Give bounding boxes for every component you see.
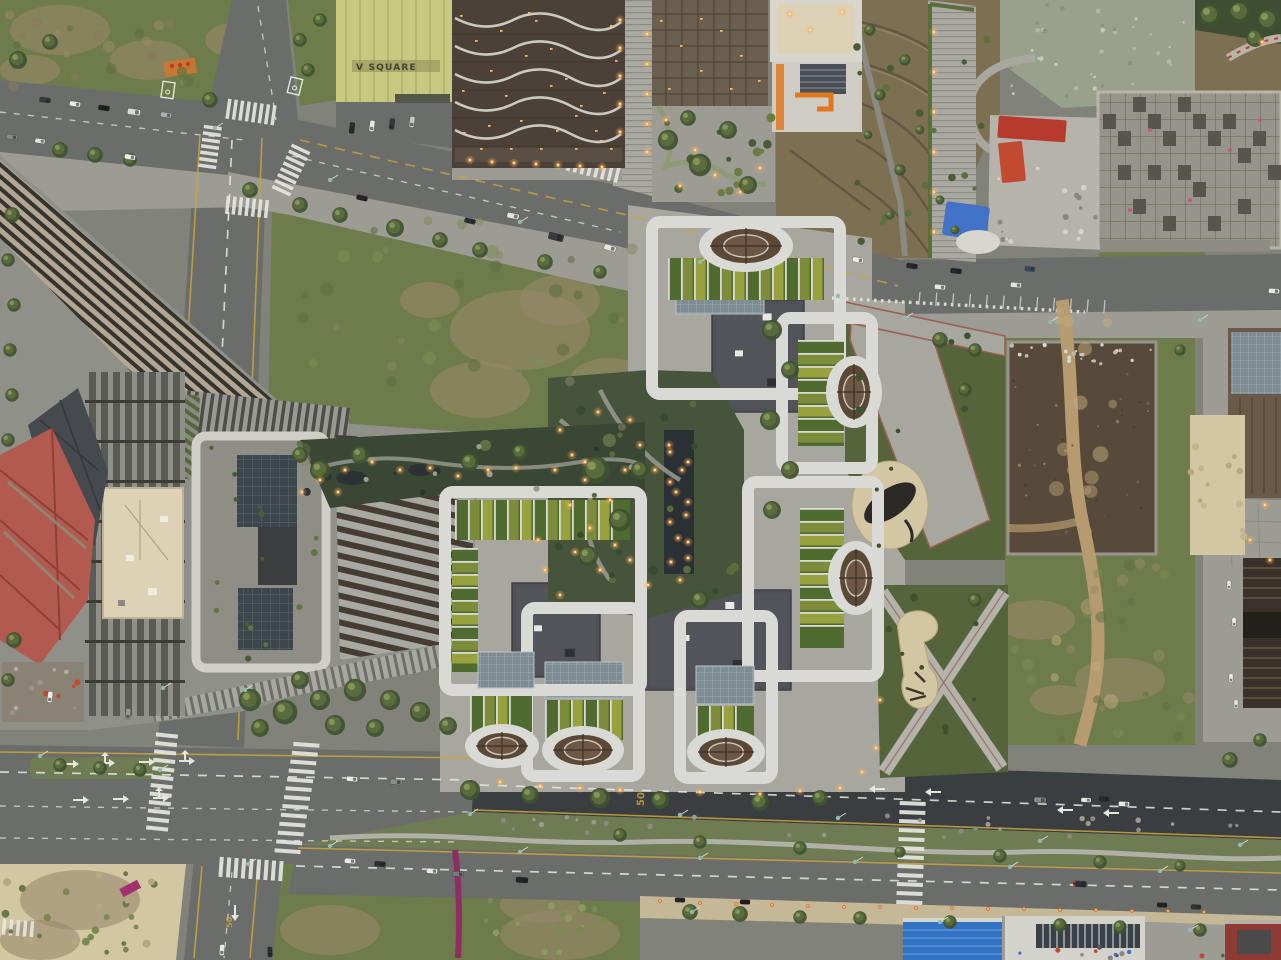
scatter-dot [298,312,309,323]
tree-highlight [9,635,14,640]
light-core [629,559,631,561]
car-windshield [1105,798,1108,801]
tree-highlight [1256,736,1260,740]
scatter-dot [245,656,251,662]
car-windshield [1163,904,1166,907]
light-core [571,454,573,456]
tree-highlight [435,235,440,240]
scatter-dot [1113,350,1117,354]
window-light [463,132,466,134]
tree-highlight [796,913,800,917]
scatter-dot [690,401,697,408]
scatter-dot [1054,63,1058,67]
traffic-cone-tip [1095,909,1096,910]
scatter-dot [501,818,506,823]
scatter-dot [539,822,544,827]
scatter-dot [1124,559,1136,571]
car-windshield [370,127,374,131]
car [219,944,225,955]
scatter-dot [648,565,658,575]
scatter-dot [148,878,155,885]
scatter-dot [5,11,14,20]
window-light [550,48,553,50]
scatter-dot [1152,563,1160,571]
tree-crown [611,511,627,527]
green-cell [798,342,844,352]
tree-highlight [897,167,901,171]
car-windshield [681,899,684,902]
green-cell [800,627,844,637]
construction-cell [1148,114,1161,129]
car [675,897,685,902]
speed-mark-1: 50 [636,792,648,807]
scatter-dot [14,706,18,710]
scatter-dot [555,543,563,551]
scatter-dot [104,950,109,955]
light-core [619,103,621,105]
scatter-dot [1009,343,1014,348]
green-cell [509,500,519,540]
window-light [460,15,463,17]
tree-highlight [243,693,250,700]
light-core [301,491,303,493]
green-cell [800,523,844,533]
window-light [575,115,578,117]
scatter-dot [972,697,977,702]
scatter-dot [603,434,616,447]
tree-crown [346,681,362,697]
tree-highlight [662,134,668,140]
scatter-dot [1028,194,1031,197]
street-light-pole [836,294,840,298]
traffic-cone-tip [659,900,660,901]
scatter-dot [1103,516,1105,518]
tree-crown [691,156,707,172]
construction-mark [1128,208,1132,212]
scatter-dot [257,505,261,509]
scatter-dot [1136,828,1141,833]
scatter-dot [855,374,863,382]
green-rib [452,561,478,563]
scatter-dot [1146,402,1149,405]
scatter-dot [1080,953,1084,957]
scatter-dot [1093,86,1097,90]
tree-highlight [1116,923,1120,927]
traffic-cone-tip [915,907,916,908]
window-light [680,45,683,47]
scatter-dot [726,566,735,575]
construction-cell [1163,216,1176,231]
scatter-dot [1034,464,1036,466]
green-rib [470,696,472,732]
scatter-dot [143,940,151,948]
window-light [510,148,513,150]
scatter-dot [488,898,493,903]
green-cell [800,510,844,520]
scatter-dot [1005,238,1008,241]
car-windshield [350,129,354,133]
tree-highlight [442,720,448,726]
light-core [589,527,591,529]
scatter-dot [248,625,254,631]
construction-cell [1118,131,1131,146]
green-cell [452,654,478,664]
pond1 [336,471,368,485]
scatter-dot [1073,396,1087,410]
construction-cell [1178,165,1191,180]
traffic-cone-tip [879,906,880,907]
construction-cell [1193,182,1206,197]
light-core [569,504,571,506]
scatter-dot [961,406,968,413]
scatter-dot [1198,465,1204,471]
roof-unit [767,378,777,386]
scatter-dot [1093,569,1102,578]
construction-cell [1133,199,1146,214]
light-core [646,93,648,95]
green-rib [800,521,844,523]
scatter-dot [1153,650,1165,662]
light-core [619,75,621,77]
scatter-dot [129,914,135,920]
green-cell [452,615,478,625]
light-core [601,166,603,168]
light-core [579,165,581,167]
scatter-dot [1027,675,1037,685]
light-core [584,461,586,463]
street-light-pole [678,813,682,817]
green-cell [800,258,810,300]
scatter-dot [1046,3,1049,6]
scatter-dot [209,446,213,450]
construction-cell [1268,165,1281,180]
scatter-dot [548,902,555,909]
scatter-dot [1120,398,1122,400]
street-light-pole [328,178,332,182]
light-core [675,491,677,493]
arrow-hook [158,790,160,797]
dirt-patch [280,905,380,955]
light-core [699,791,701,793]
scatter-dot [1078,342,1092,356]
light-core [319,479,321,481]
green-rib [452,574,478,576]
green-rib [452,626,478,628]
window-light [575,148,578,150]
window-light [480,148,483,150]
scatter-dot [123,871,128,876]
scatter-dot [480,440,491,451]
scatter-dot [9,929,13,933]
green-rib [452,548,478,550]
green-cell [798,420,844,430]
scatter-dot [1192,443,1199,450]
scatter-dot [942,724,949,731]
green-cell [600,500,610,540]
scatter-dot [1074,86,1078,90]
scatter-dot [1128,598,1136,606]
scatter-dot [1055,404,1058,407]
tree-highlight [475,245,480,250]
street-light-pole [518,850,522,854]
green-rib [455,500,457,540]
tree-highlight [742,179,748,185]
light-core [665,119,667,121]
street-light-pole [1048,320,1052,324]
street-light-pole [903,316,907,320]
scatter-dot [1206,482,1210,486]
scatter-dot [1171,822,1175,826]
scatter-dot [215,580,220,585]
tree-crown [1259,11,1275,27]
scatter-dot [1235,824,1238,827]
tree-highlight [1225,755,1230,760]
scatter-dot [1036,167,1040,171]
street-light-pole [698,856,702,860]
scatter-dot [1100,28,1105,33]
green-cell [470,500,480,540]
green-cell [452,628,478,638]
car [1034,797,1046,803]
scatter-dot [423,351,436,364]
light-core [584,479,586,481]
scatter-dot [1095,611,1106,622]
light-core [487,469,489,471]
scatter-dot [1116,954,1119,957]
light-core [535,163,537,165]
tree-highlight [867,27,871,31]
car [369,120,375,132]
scatter-dot [398,337,405,344]
scatter-dot [97,903,103,909]
green-rib [681,258,683,300]
light-core [694,149,696,151]
scatter-dot [1173,732,1183,742]
green-rib [707,258,709,300]
scatter-dot [726,157,731,162]
light-core [875,747,877,749]
street-light-pole [158,768,162,772]
scatter-dot [1011,646,1019,654]
tree-highlight [902,57,906,61]
scatter-dot [594,447,599,452]
scatter-dot [20,33,26,39]
construction-cell [1208,216,1221,231]
car [1191,904,1201,909]
tree-highlight [354,449,360,455]
scatter-dot [19,885,26,892]
tower-two [652,0,768,106]
scatter-dot [1113,728,1124,739]
scatter-dot [1029,449,1031,451]
light-core [646,123,648,125]
scatter-dot [516,921,521,926]
tree-highlight [887,212,890,215]
scatter-dot [533,356,544,367]
scatter-dot [1011,85,1014,88]
scatter-dot [576,406,585,415]
light-core [544,569,546,571]
light-core [559,429,561,431]
green-cell [683,258,693,300]
window-light [462,90,465,92]
light-core [624,469,626,471]
scatter-dot [476,218,484,226]
tree-highlight [1096,858,1100,862]
scatter-dot [998,827,1002,831]
scatter-dot [1025,354,1029,358]
scatter-dot [887,65,894,72]
scatter-dot [1099,49,1103,53]
window-light [720,30,723,32]
construction-cell [1103,114,1116,129]
scatter-dot [577,532,583,538]
light-core [646,63,648,65]
light-core [619,19,621,21]
scatter-dot [983,36,991,44]
street-light-pole [1158,869,1162,873]
glass-canopy [696,666,754,704]
scatter-dot [1135,817,1141,823]
scatter-dot [978,123,984,129]
scatter-dot [1053,196,1058,201]
scatter-dot [592,820,597,825]
wedge-glass1 [237,455,297,527]
scatter-dot [103,41,115,53]
scatter-dot [591,906,597,912]
light-core [344,469,346,471]
tree-highlight [304,66,308,70]
scatter-dot [19,710,23,714]
tree-highlight [722,124,728,130]
scatter-dot [1159,570,1169,580]
scatter-dot [1080,224,1085,229]
roof-unit [565,649,575,657]
scatter-dot [1131,83,1134,86]
scatter-dot [822,833,826,837]
street-light-pole [836,816,840,820]
scatter-dot [896,429,901,434]
scatter-dot [1093,446,1109,462]
green-cell [800,536,844,546]
scatter-dot [387,362,397,372]
scatter-dot [1093,695,1101,703]
scatter-dot [1133,426,1135,428]
street-light-pole [1198,318,1202,322]
scatter-dot [667,506,674,513]
scatter-dot [763,140,772,149]
tree-highlight [277,704,285,712]
green-cell [587,500,597,540]
vsquare-sign-text: V SQUARE [356,63,417,73]
tree-highlight [294,674,300,680]
light-core [799,790,801,792]
car [1227,581,1231,590]
scatter-dot [1097,945,1102,950]
scatter-dot [568,256,575,263]
scatter-dot [1150,349,1152,351]
street-light-pole [213,126,217,130]
scatter-dot [1012,379,1015,382]
scatter-dot [372,251,383,262]
dirt-patch [10,5,110,55]
arrow-hook [104,755,106,762]
construction-cell [1223,114,1236,129]
window-light [500,30,503,32]
window-light [528,12,531,14]
scatter-dot [889,467,893,471]
tree-highlight [464,456,470,462]
tree-highlight [897,849,901,853]
construction-mark [1228,148,1232,152]
light-core [679,579,681,581]
green-rib [598,500,600,540]
light-core [789,13,791,15]
scatter-dot [454,279,464,289]
light-core [687,501,689,503]
green-cell [813,258,823,300]
scatter-dot [877,544,881,548]
light-core [457,475,459,477]
scatter-dot [67,25,73,31]
scatter-dot [121,941,126,946]
scatter-dot [1099,705,1106,712]
scatter-dot [386,376,396,386]
car-windshield [353,777,357,781]
light-core [714,174,716,176]
scatter-dot [297,441,303,447]
scatter-dot [1177,712,1186,721]
green-rib [452,652,478,654]
scatter-dot [93,30,104,41]
scatter-dot [424,216,433,225]
light-core [429,467,431,469]
scatter-dot [1090,73,1093,76]
tree-highlight [594,792,600,798]
scatter-dot [177,67,187,77]
scatter-dot [1062,188,1067,193]
scatter-dot [63,888,70,895]
car-windshield [48,698,52,702]
tree-highlight [856,914,860,918]
tree-highlight [335,210,340,215]
tree-highlight [136,766,140,770]
light-core [1269,559,1271,561]
scatter-dot [1079,206,1083,210]
scatter-dot [142,37,151,46]
tree-highlight [45,37,50,42]
scatter-dot [931,128,936,133]
scatter-dot [44,914,51,921]
scatter-dot [1064,350,1068,354]
scatter-dot [8,81,19,92]
scatter-dot [311,549,318,556]
light-core [809,29,811,31]
green-rib [545,700,547,740]
scatter-dot [296,604,302,610]
car-windshield [941,285,945,289]
scatter-dot [997,177,1000,180]
scatter-dot [10,710,15,715]
scatter-dot [512,827,515,830]
scatter-dot [333,324,340,331]
light-core [499,781,501,783]
scatter-dot [1041,95,1044,98]
scatter-dot [592,493,597,498]
light-core [654,469,656,471]
scatter-dot [37,933,42,938]
scatter-dot [1056,307,1065,316]
